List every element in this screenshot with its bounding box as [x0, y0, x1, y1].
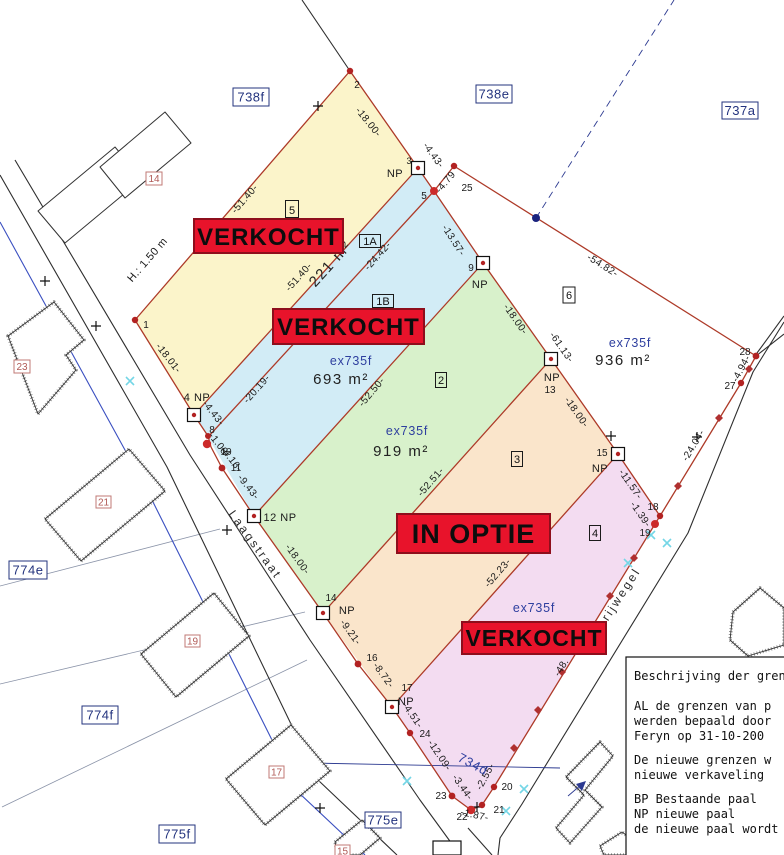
point-label-5: 5 [421, 191, 427, 202]
svg-text:14: 14 [148, 174, 160, 185]
banner-verkocht-bottom: VERKOCHT [462, 622, 606, 654]
house-17: 17 [269, 766, 284, 779]
banner-verkocht-top: VERKOCHT [194, 219, 343, 253]
side-road-west-continuation [756, 334, 784, 356]
np-box-14 [317, 607, 330, 620]
point-label-22: 22 [456, 812, 468, 823]
lot6-area: 936 m² [595, 352, 651, 369]
svg-text:774e: 774e [13, 563, 44, 578]
plan-canvas: -51.40- -18.00- -4.43- -4.79 -13.57- -54… [0, 0, 784, 855]
svg-text:17: 17 [271, 768, 283, 779]
svg-text:23: 23 [16, 362, 28, 373]
banner-in-optie: IN OPTIE [397, 514, 550, 553]
svg-text:738f: 738f [237, 90, 264, 105]
point-label-15: 15 [596, 448, 608, 459]
point-label-17: 17 [401, 683, 413, 694]
point-label-27: 27 [724, 381, 736, 392]
house-15: 15 [335, 845, 350, 855]
svg-text:VERKOCHT: VERKOCHT [197, 224, 340, 251]
dim-54-82: -54.82- [585, 252, 620, 280]
np-box-12 [248, 510, 261, 523]
dashed-boundary-738e-737a [536, 0, 674, 218]
lot4-old-parcel: ex735f [513, 601, 555, 615]
point-label-16: 16 [366, 653, 378, 664]
point-dot-11 [219, 465, 226, 472]
side-road-building-2 [730, 588, 784, 656]
np-label-3: NP [387, 168, 403, 180]
cut-label-box [433, 841, 461, 855]
house-14: 14 [146, 172, 162, 185]
svg-text:1A: 1A [363, 236, 377, 248]
np-label-9: NP [472, 279, 488, 291]
point-label-9: 9 [468, 263, 474, 274]
notes-line-2: AL de grenzen van p [634, 699, 771, 713]
svg-text:775e: 775e [368, 813, 399, 828]
cyan-cross [126, 377, 134, 385]
height-note-label: H.: 1.50 m [125, 235, 170, 284]
point-dot-2 [347, 68, 353, 74]
point-label-28: 28 [739, 347, 751, 358]
point-label-19: 19 [639, 528, 651, 539]
np-box-4 [188, 409, 201, 422]
label-737a: 737a [722, 102, 758, 119]
notes-box: Beschrijving der gren AL de grenzen van … [626, 657, 784, 855]
lot6-old-parcel: ex735f [609, 336, 651, 350]
laagstraat-south-branch [468, 828, 492, 855]
np-box-9 [477, 257, 490, 270]
point-dot-20 [491, 784, 497, 790]
lot6-number: 6 [563, 287, 575, 303]
np-label-17: NP [398, 696, 414, 708]
np-label-14: NP [339, 605, 355, 617]
svg-text:21: 21 [98, 498, 110, 509]
blue-junction-dot [532, 214, 540, 222]
lot1b-old-parcel: ex735f [330, 354, 372, 368]
cyan-cross [403, 777, 411, 785]
point-label-8: 8 [209, 425, 215, 436]
lot2-old-parcel: ex735f [386, 424, 428, 438]
point-label-21: 21 [493, 805, 505, 816]
notes-line-6: nieuwe verkaveling [634, 768, 764, 782]
point-label-25: 25 [461, 183, 473, 194]
svg-text:2: 2 [438, 375, 444, 387]
label-775e: 775e [365, 812, 401, 828]
label-738e: 738e [476, 85, 512, 103]
label-774f: 774f [82, 706, 118, 724]
point-label-1: 1 [143, 320, 149, 331]
point-dot-21 [479, 802, 485, 808]
svg-text:738e: 738e [479, 87, 510, 102]
notes-line-8: NP nieuwe paal [634, 807, 735, 821]
point-label-18: 18 [647, 502, 659, 513]
building-738f-house14 [38, 112, 191, 243]
svg-text:775f: 775f [163, 827, 190, 842]
point-label-23: 23 [435, 791, 447, 802]
svg-text:6: 6 [566, 290, 572, 302]
notes-line-5: De nieuwe grenzen w [634, 753, 772, 767]
side-road-outer-edge [757, 316, 784, 353]
point-dot-28 [753, 353, 760, 360]
svg-text:IN OPTIE: IN OPTIE [412, 519, 536, 549]
label-738f: 738f [233, 88, 269, 106]
svg-text:774f: 774f [86, 708, 113, 723]
notes-line-9: de nieuwe paal wordt [634, 822, 779, 836]
svg-text:1B: 1B [376, 296, 389, 308]
point-dot-16 [355, 661, 362, 668]
point-label-3: 3 [406, 156, 411, 166]
point-dot-18 [657, 513, 663, 519]
plus-marker [315, 803, 325, 813]
point-label-24: 24 [419, 729, 431, 740]
point-label-12np: 12 NP [263, 512, 296, 524]
plus-marker [222, 525, 232, 535]
np-box-17 [386, 701, 399, 714]
np-label-15: NP [592, 463, 608, 475]
house23-building [8, 302, 84, 414]
svg-text:15: 15 [337, 847, 349, 855]
lot2-area: 919 m² [373, 443, 429, 460]
label-775f: 775f [159, 825, 195, 843]
notes-line-4: Feryn op 31-10-200 [634, 729, 764, 743]
point-label-20: 20 [501, 782, 513, 793]
side-road-building-1 [556, 742, 613, 843]
np-box-15 [612, 448, 625, 461]
point-dot-1 [132, 317, 138, 323]
point-dot-23 [449, 793, 456, 800]
house-21: 21 [96, 496, 111, 509]
notes-line-7: BP Bestaande paal [634, 792, 757, 806]
cadastral-plan: -51.40- -18.00- -4.43- -4.79 -13.57- -54… [0, 0, 784, 855]
dim-4-79: -4.79 [434, 169, 458, 195]
plus-marker [91, 321, 101, 331]
point-label-4np: 4 NP [184, 392, 210, 404]
banner-verkocht-middle: VERKOCHT [273, 309, 424, 344]
svg-text:19: 19 [187, 637, 199, 648]
point-dot-24 [407, 730, 413, 736]
svg-text:VERKOCHT: VERKOCHT [465, 625, 602, 651]
svg-text:3: 3 [514, 454, 520, 466]
notes-line-3: werden bepaald door [634, 714, 771, 728]
north-boundary-line [302, 0, 350, 71]
plus-marker [40, 276, 50, 286]
notes-line-1: Beschrijving der gren [634, 669, 784, 683]
svg-text:5: 5 [289, 205, 295, 217]
svg-text:4: 4 [592, 528, 598, 540]
np-box-3 [412, 162, 425, 175]
lot1b-area: 693 m² [313, 371, 369, 388]
svg-text:737a: 737a [725, 103, 756, 118]
cyan-cross [663, 539, 671, 547]
point-label-14: 14 [325, 593, 337, 604]
cyan-cross [520, 785, 528, 793]
svg-text:VERKOCHT: VERKOCHT [277, 314, 420, 341]
house-23: 23 [14, 360, 30, 373]
label-774e: 774e [9, 561, 47, 579]
np-label-13: NP [544, 372, 560, 384]
point-label-2: 2 [354, 80, 360, 91]
point-label-13: 13 [544, 385, 556, 396]
np-box-13 [545, 353, 558, 366]
point-dot-25 [451, 163, 457, 169]
house-19: 19 [185, 635, 200, 648]
point-label-10: 10 [220, 447, 232, 458]
point-label-11: 11 [231, 463, 242, 474]
